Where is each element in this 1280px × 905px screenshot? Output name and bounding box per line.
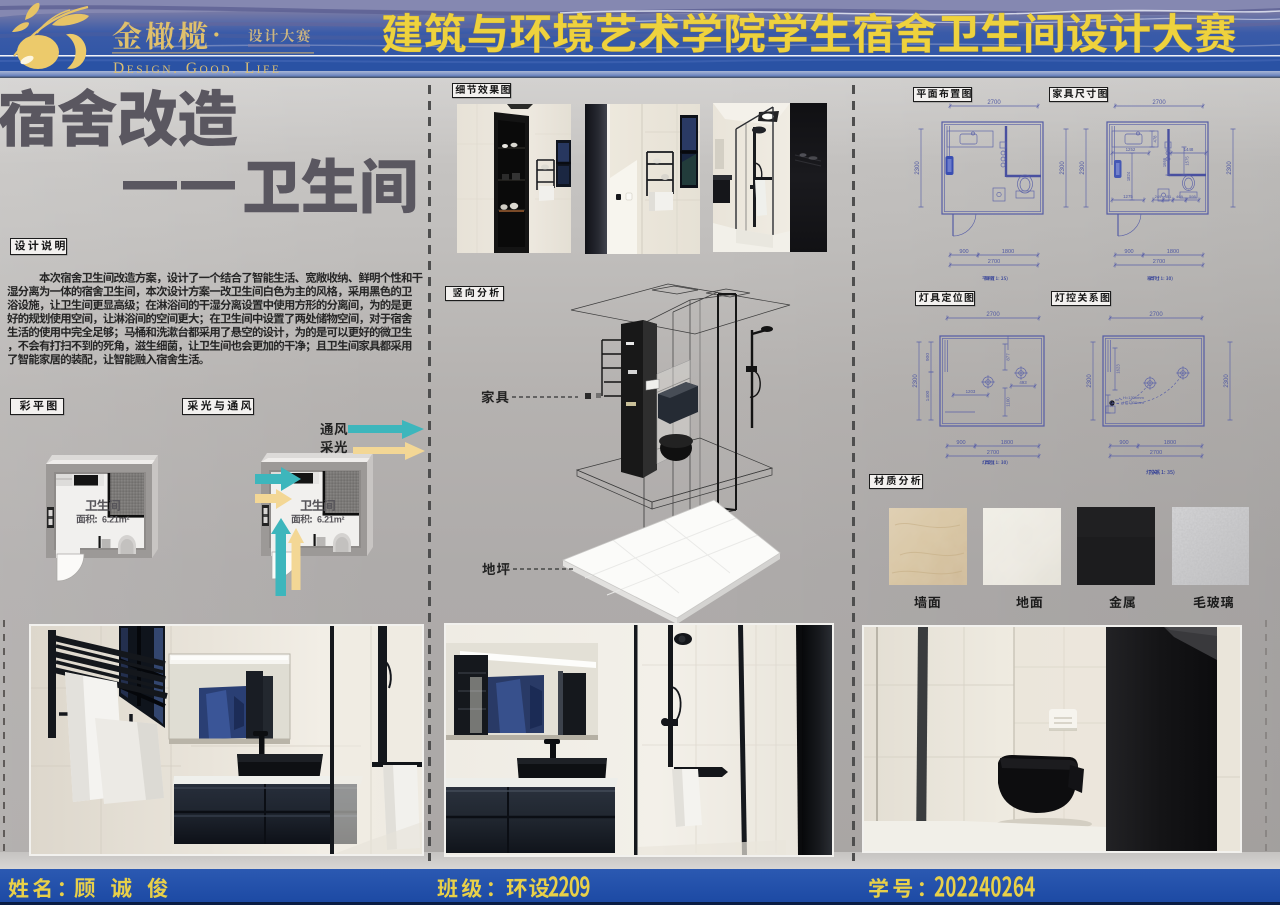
svg-text:1400: 1400	[925, 390, 931, 401]
svg-text:295: 295	[1109, 400, 1114, 407]
svg-text:2300: 2300	[1087, 374, 1093, 388]
svg-text:900: 900	[1119, 440, 1128, 446]
svg-text:595: 595	[1189, 194, 1196, 199]
svg-text:2300: 2300	[1080, 161, 1086, 175]
svg-text:1623: 1623	[1116, 364, 1121, 374]
svg-text:2300: 2300	[915, 161, 921, 175]
svg-text:469: 469	[1176, 194, 1183, 199]
svg-text:2700: 2700	[987, 100, 1001, 106]
svg-text:900: 900	[959, 249, 968, 255]
svg-text:1448: 1448	[1184, 147, 1194, 152]
svg-text:2700: 2700	[1149, 312, 1163, 318]
svg-text:2700: 2700	[987, 450, 999, 456]
svg-text:451: 451	[1165, 194, 1172, 199]
svg-text:2700: 2700	[1152, 100, 1166, 106]
svg-text:1800: 1800	[1164, 440, 1176, 446]
svg-text:2300: 2300	[1224, 374, 1230, 388]
svg-text:2700: 2700	[988, 259, 1000, 265]
svg-text:2700: 2700	[1150, 450, 1162, 456]
svg-text:877: 877	[1006, 353, 1011, 361]
svg-text:2300: 2300	[1060, 161, 1066, 175]
svg-text:1666: 1666	[1162, 157, 1167, 167]
svg-text:1800: 1800	[1001, 440, 1013, 446]
svg-text:249: 249	[1155, 194, 1162, 199]
svg-text:2700: 2700	[986, 312, 1000, 318]
svg-text:900: 900	[956, 440, 965, 446]
svg-text:1575: 1575	[1185, 156, 1190, 166]
svg-text:1824: 1824	[1126, 171, 1131, 181]
svg-text:H=1300mm: H=1300mm	[1123, 400, 1144, 405]
svg-text:1800: 1800	[1167, 249, 1179, 255]
svg-text:1203: 1203	[966, 389, 976, 394]
svg-text:2700: 2700	[1153, 259, 1165, 265]
svg-text:1275: 1275	[1123, 194, 1133, 199]
svg-text:478: 478	[1153, 135, 1158, 143]
svg-text:2300: 2300	[1227, 161, 1233, 175]
svg-text:1252: 1252	[1126, 147, 1136, 152]
svg-text:1100: 1100	[1006, 397, 1011, 407]
svg-text:900: 900	[925, 353, 931, 361]
svg-text:493: 493	[1019, 380, 1027, 385]
svg-text:900: 900	[1124, 249, 1133, 255]
svg-text:1800: 1800	[1002, 249, 1014, 255]
svg-text:2300: 2300	[913, 374, 919, 388]
